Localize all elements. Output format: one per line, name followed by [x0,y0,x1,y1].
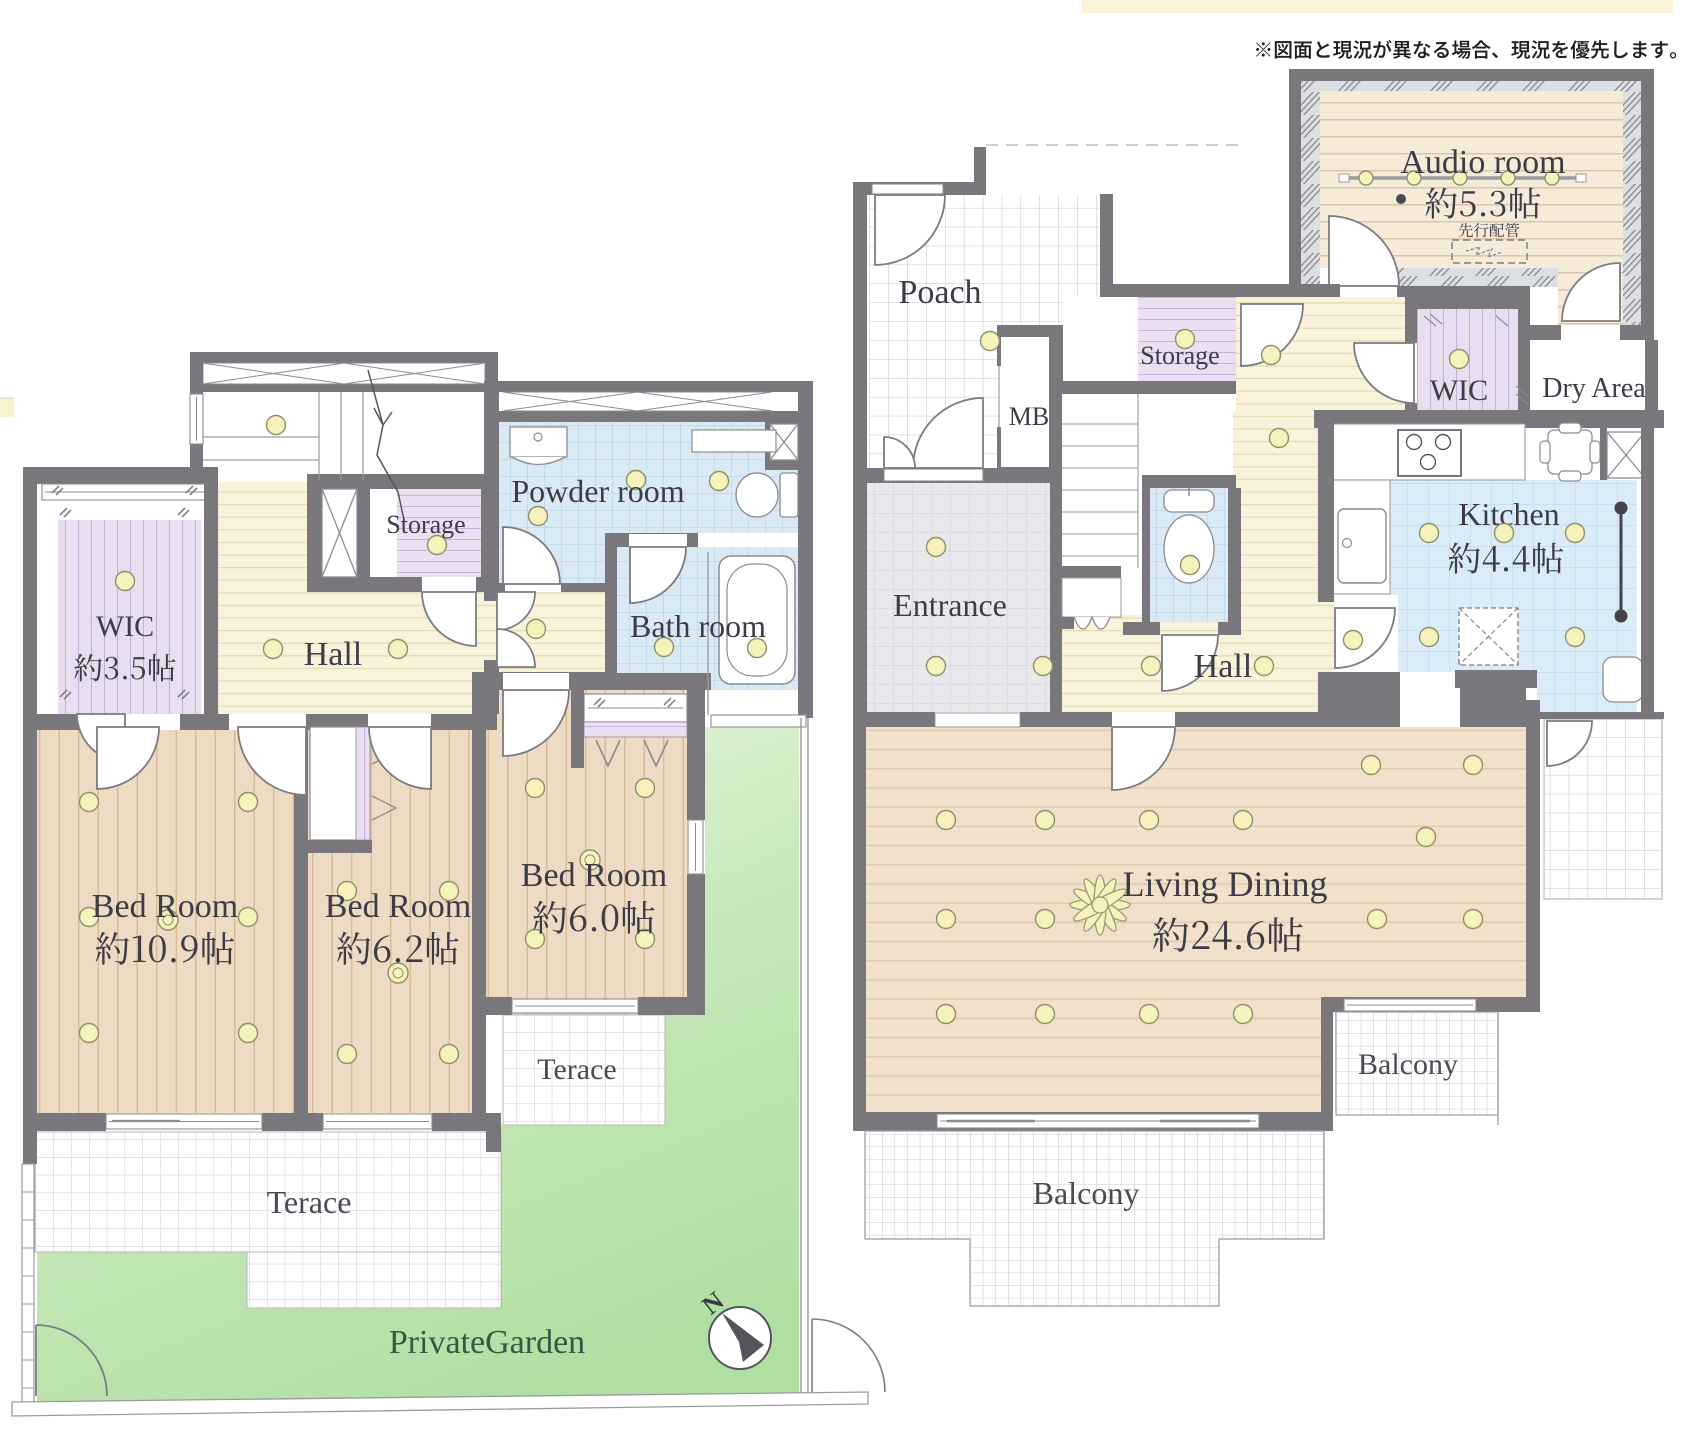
svg-text:Audio room: Audio room [1400,144,1565,181]
svg-text:Living Dining: Living Dining [1123,864,1328,904]
svg-text:Balcony: Balcony [1033,1175,1140,1211]
svg-text:Bed Room: Bed Room [92,888,238,925]
svg-text:Bath room: Bath room [630,608,766,644]
svg-text:WIC: WIC [96,610,154,643]
svg-text:Hall: Hall [304,636,363,673]
svg-text:Entrance: Entrance [893,587,1007,623]
svg-text:PrivateGarden: PrivateGarden [389,1324,585,1361]
svg-text:Terace: Terace [267,1184,352,1220]
svg-text:Storage: Storage [386,510,465,539]
svg-text:Terace: Terace [537,1053,616,1086]
svg-text:Bed Room: Bed Room [521,857,667,894]
svg-text:WIC: WIC [1430,374,1488,407]
svg-text:Powder room: Powder room [511,473,684,509]
svg-text:Dry Area: Dry Area [1542,373,1646,404]
svg-text:Poach: Poach [898,274,981,311]
svg-text:Hall: Hall [1194,648,1253,685]
svg-text:Balcony: Balcony [1358,1048,1458,1081]
svg-text:MB: MB [1009,402,1049,431]
svg-text:Bed Room: Bed Room [325,888,471,925]
